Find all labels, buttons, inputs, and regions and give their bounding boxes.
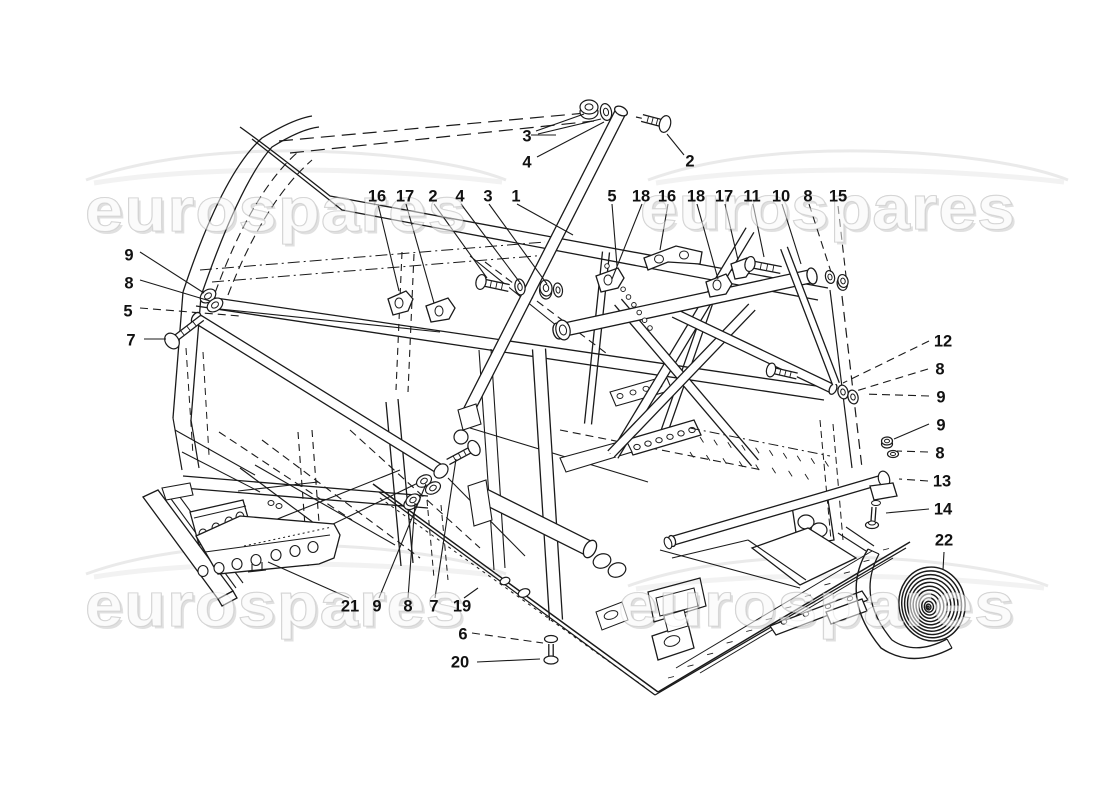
- svg-text:8: 8: [935, 361, 944, 379]
- svg-text:5: 5: [607, 188, 616, 206]
- svg-text:13: 13: [933, 473, 951, 491]
- svg-text:22: 22: [935, 532, 953, 550]
- svg-text:11: 11: [743, 188, 760, 206]
- svg-text:15: 15: [829, 188, 847, 206]
- svg-text:3: 3: [522, 128, 531, 146]
- svg-text:20: 20: [451, 654, 469, 672]
- svg-text:2: 2: [428, 188, 437, 206]
- svg-text:9: 9: [936, 417, 945, 435]
- svg-text:7: 7: [126, 332, 135, 350]
- svg-text:18: 18: [632, 188, 650, 206]
- svg-text:9: 9: [936, 389, 945, 407]
- svg-text:eurospares: eurospares: [618, 571, 1015, 640]
- svg-text:8: 8: [403, 598, 412, 616]
- svg-text:16: 16: [658, 188, 676, 206]
- svg-text:17: 17: [715, 188, 733, 206]
- svg-text:17: 17: [396, 188, 414, 206]
- svg-text:4: 4: [455, 188, 465, 206]
- svg-text:19: 19: [453, 598, 471, 616]
- svg-text:14: 14: [934, 501, 953, 519]
- svg-text:6: 6: [458, 626, 467, 644]
- svg-text:9: 9: [372, 598, 381, 616]
- svg-text:5: 5: [123, 303, 132, 321]
- svg-text:eurospares: eurospares: [640, 174, 1016, 243]
- svg-text:eurospares: eurospares: [85, 176, 467, 245]
- svg-text:2: 2: [685, 153, 694, 171]
- svg-text:16: 16: [368, 188, 386, 206]
- svg-text:8: 8: [935, 445, 944, 463]
- svg-text:10: 10: [772, 188, 790, 206]
- svg-text:8: 8: [124, 275, 133, 293]
- svg-text:8: 8: [803, 188, 812, 206]
- svg-text:9: 9: [124, 247, 133, 265]
- svg-text:12: 12: [934, 333, 952, 351]
- svg-text:21: 21: [341, 598, 359, 616]
- svg-text:1: 1: [511, 188, 520, 206]
- svg-text:4: 4: [522, 154, 532, 172]
- svg-text:7: 7: [429, 598, 438, 616]
- svg-text:18: 18: [687, 188, 705, 206]
- svg-text:3: 3: [483, 188, 492, 206]
